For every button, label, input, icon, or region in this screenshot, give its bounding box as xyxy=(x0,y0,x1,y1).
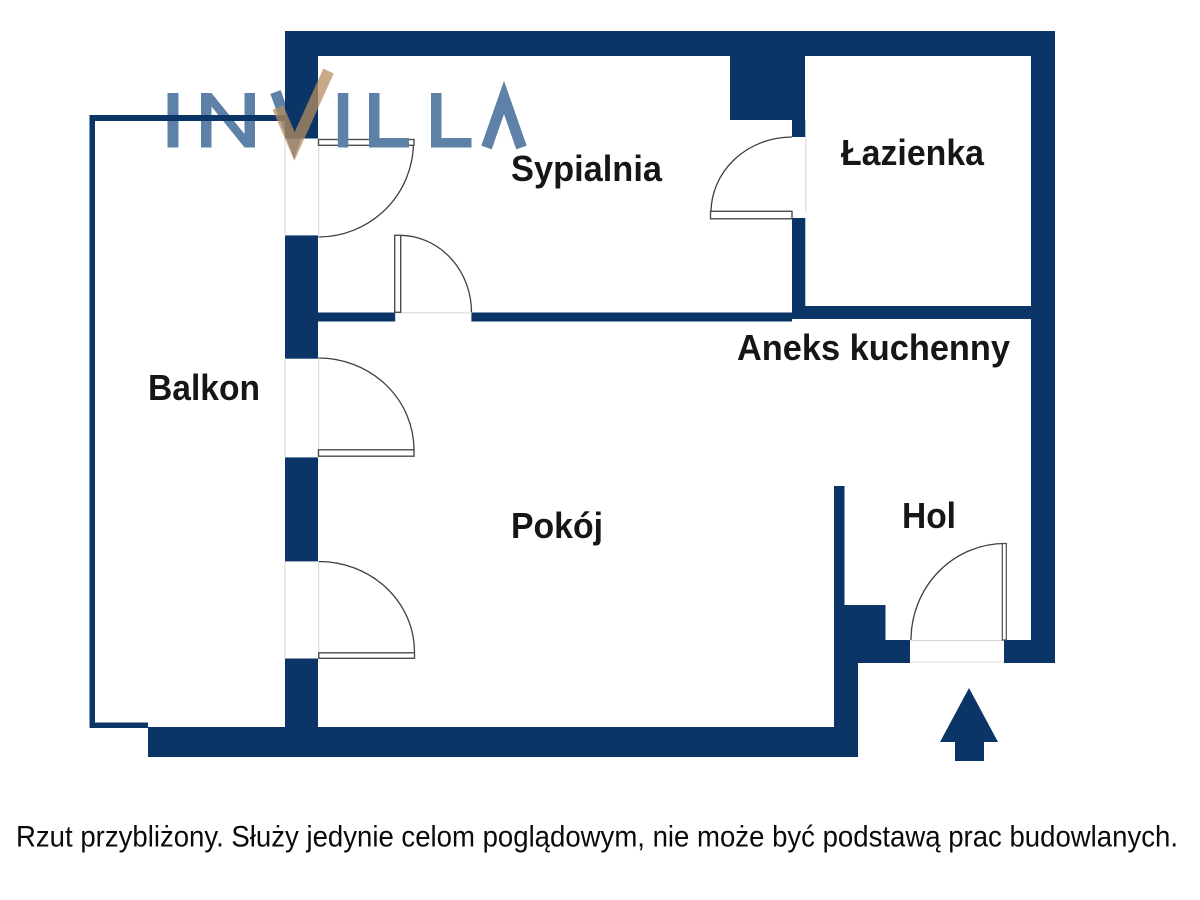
svg-text:Pokój: Pokój xyxy=(511,505,603,546)
svg-text:Balkon: Balkon xyxy=(148,367,260,408)
svg-text:Hol: Hol xyxy=(902,495,956,536)
svg-text:Aneks kuchenny: Aneks kuchenny xyxy=(737,327,1010,368)
svg-text:Łazienka: Łazienka xyxy=(841,132,985,173)
svg-text:Sypialnia: Sypialnia xyxy=(511,148,663,189)
svg-text:Rzut przybliżony. Służy jedyni: Rzut przybliżony. Służy jedynie celom po… xyxy=(16,821,1178,854)
